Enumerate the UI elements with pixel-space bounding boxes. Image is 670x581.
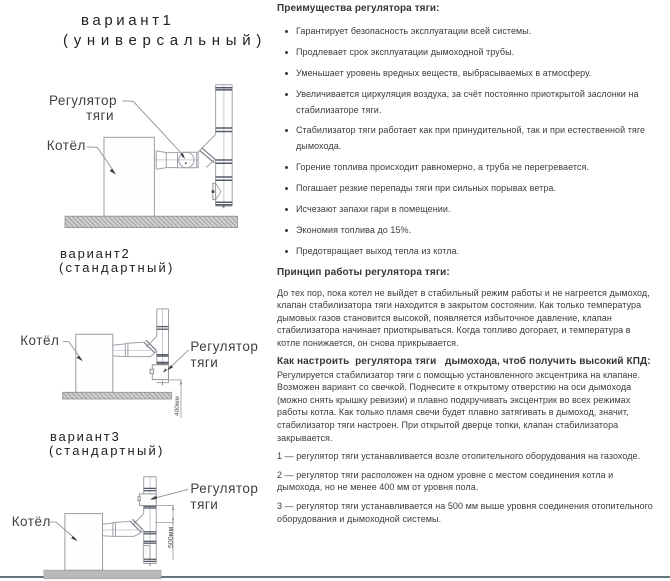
- svg-text:400мм: 400мм: [174, 396, 181, 416]
- svg-text:500мм: 500мм: [168, 527, 175, 548]
